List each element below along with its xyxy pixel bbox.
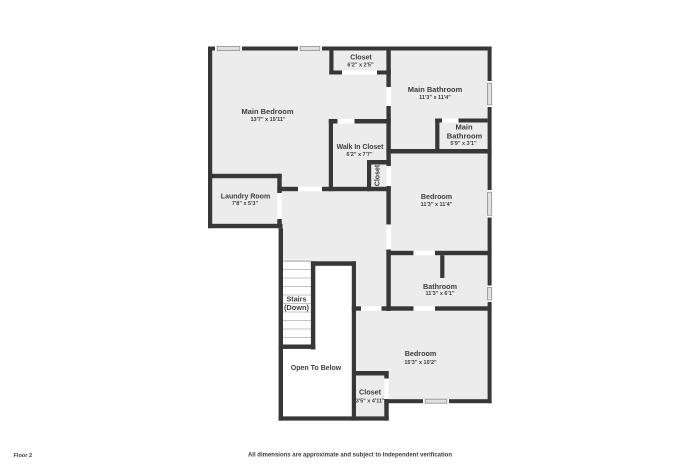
svg-text:6'2" x 2'5": 6'2" x 2'5" xyxy=(347,62,374,68)
svg-text:Bedroom: Bedroom xyxy=(421,193,452,201)
svg-text:6'2" x 7'7": 6'2" x 7'7" xyxy=(346,152,373,158)
svg-text:Bathroom: Bathroom xyxy=(423,282,457,291)
svg-text:Main Bedroom: Main Bedroom xyxy=(241,107,293,116)
svg-text:13'7" x 15'11": 13'7" x 15'11" xyxy=(250,117,285,123)
svg-text:11'3" x 6'1": 11'3" x 6'1" xyxy=(426,291,455,297)
svg-text:11'3" x 11'4": 11'3" x 11'4" xyxy=(419,95,451,101)
svg-text:Main Bathroom: Main Bathroom xyxy=(408,85,463,94)
svg-text:Closet: Closet xyxy=(374,164,381,186)
svg-text:Main: Main xyxy=(455,122,473,131)
svg-text:3'5" x 4'11": 3'5" x 4'11" xyxy=(356,398,385,404)
svg-text:(Down): (Down) xyxy=(284,303,310,312)
svg-text:Closet: Closet xyxy=(359,388,382,397)
svg-text:Floor 2: Floor 2 xyxy=(14,453,33,459)
svg-text:Laundry Room: Laundry Room xyxy=(221,194,270,201)
svg-text:15'3" x 10'2": 15'3" x 10'2" xyxy=(404,360,437,366)
svg-text:Walk In Closet: Walk In Closet xyxy=(337,144,385,151)
svg-text:All dimensions are approximate: All dimensions are approximate and subje… xyxy=(248,453,452,459)
svg-text:Bathroom: Bathroom xyxy=(447,131,483,140)
svg-text:Bedroom: Bedroom xyxy=(405,349,437,358)
svg-text:7'8" x 5'3": 7'8" x 5'3" xyxy=(232,201,259,207)
svg-text:Stairs: Stairs xyxy=(287,294,307,303)
svg-text:Closet: Closet xyxy=(350,55,372,62)
svg-text:11'3" x 11'4": 11'3" x 11'4" xyxy=(421,202,453,208)
svg-text:Open To Below: Open To Below xyxy=(291,365,342,372)
svg-text:5'9" x 3'1": 5'9" x 3'1" xyxy=(450,141,477,147)
